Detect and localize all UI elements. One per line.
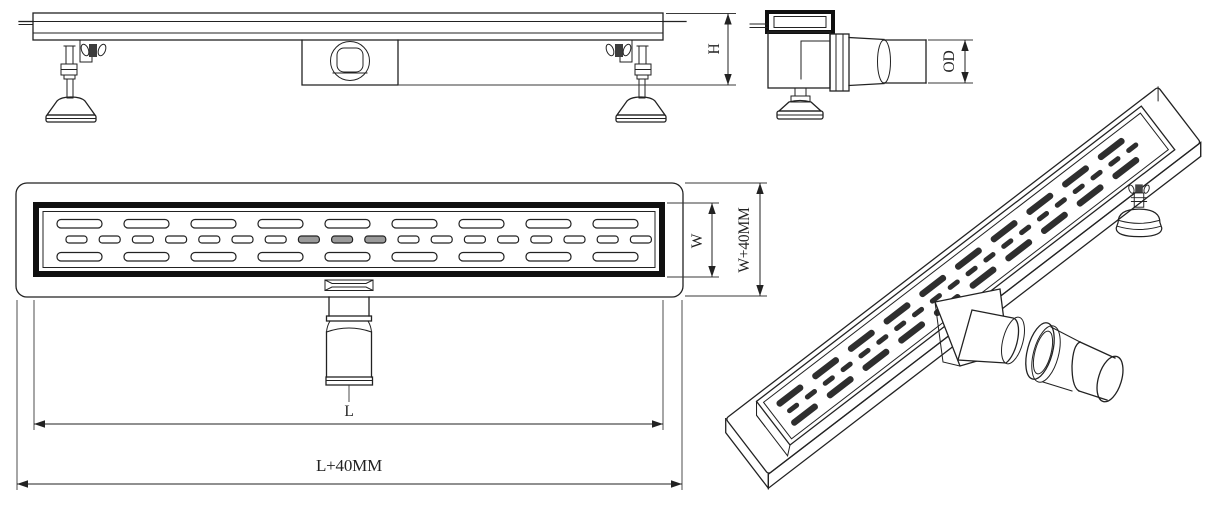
grate-slot (57, 220, 102, 229)
grate-slot (526, 220, 571, 229)
grate-slot (918, 274, 947, 299)
grate-slot (325, 220, 370, 229)
isometric-view (719, 87, 1220, 521)
grate-slot (325, 253, 370, 262)
end-grate-section (750, 12, 833, 32)
grate-slot (459, 253, 504, 262)
grate-slot (132, 236, 153, 243)
grate-slot (191, 253, 236, 262)
grate-slot (1107, 155, 1121, 167)
side-elevation-view: H (19, 13, 736, 122)
grate-slot (1025, 192, 1054, 217)
grate-slot (847, 328, 876, 353)
grate-slot (597, 236, 618, 243)
grate-slot (593, 220, 638, 229)
iso-channel (719, 87, 1207, 488)
grate-slot (431, 236, 452, 243)
grate-slot (1089, 169, 1103, 181)
side-foot-right (605, 40, 666, 122)
grate-slot (298, 236, 319, 243)
grate-slot (332, 236, 353, 243)
grate-slot (258, 220, 303, 229)
technical-drawing-canvas: H (0, 0, 1220, 521)
grate-slot (804, 388, 818, 400)
end-outlet-pipe (830, 34, 926, 91)
grate-slot (786, 402, 800, 414)
grate-slot (1018, 224, 1032, 236)
od-dimension: OD (928, 40, 973, 83)
drawing-page: H (0, 0, 1220, 521)
grate-slot (947, 278, 961, 290)
grate-slot (775, 383, 804, 408)
grate-slot (392, 253, 437, 262)
grate-slot (1054, 196, 1068, 208)
grate-slot (191, 220, 236, 229)
grate-slot (398, 236, 419, 243)
grate-slot (1036, 210, 1050, 222)
dim-label-w: W (689, 233, 706, 248)
grate-slot (464, 236, 485, 243)
grate-slot (811, 356, 840, 381)
grate-slot (265, 236, 286, 243)
grate-slot (199, 236, 220, 243)
grate-slot (911, 306, 925, 318)
grate-slot (989, 219, 1018, 244)
plan-trap-outlet (326, 297, 373, 402)
grate-slot (392, 220, 437, 229)
grate-slot (1125, 141, 1139, 153)
dim-label-l-plus-40: L+40MM (316, 456, 382, 475)
grate-slot (1061, 164, 1090, 189)
grate-slot (1072, 183, 1086, 195)
side-trap (302, 40, 398, 85)
grate-slot (1097, 137, 1126, 162)
grate-slot (526, 253, 571, 262)
w-dimension: W (667, 203, 719, 277)
grate-slot (822, 374, 836, 386)
grate-slot (99, 236, 120, 243)
grate-slot (498, 236, 519, 243)
grate-slot (882, 301, 911, 326)
grate-slot (365, 236, 386, 243)
l-dimension: L (34, 300, 663, 430)
end-channel-body (768, 32, 830, 88)
plan-view: W W+40MM L L+40MM (16, 183, 767, 490)
grate-slot (124, 220, 169, 229)
grate-slot (893, 320, 907, 332)
grate-slot (982, 251, 996, 263)
dim-label-h: H (706, 44, 723, 55)
grate-slot (57, 253, 102, 262)
h-dimension: H (398, 14, 736, 86)
plan-outlet-flange (325, 280, 373, 291)
grate-slot (258, 253, 303, 262)
dim-label-l: L (344, 403, 353, 420)
grate-slot (954, 246, 983, 271)
dim-label-w-plus-40: W+40MM (736, 207, 753, 273)
end-foot (777, 88, 823, 119)
grate-slot (1000, 237, 1014, 249)
grate-slot (840, 361, 854, 373)
grate-slot (232, 236, 253, 243)
iso-pipe-coupling (1020, 320, 1127, 405)
grate-slot (564, 236, 585, 243)
grate-slot (965, 265, 979, 277)
plan-grate-slots (57, 220, 651, 262)
grate-slot (875, 333, 889, 345)
grate-slot (66, 236, 87, 243)
grate-slot (630, 236, 651, 243)
grate-slot (459, 220, 504, 229)
grate-slot (857, 347, 871, 359)
dim-label-od: OD (941, 51, 958, 73)
side-channel-body (19, 13, 686, 40)
end-section-view: OD (750, 12, 973, 119)
side-foot-left (46, 40, 107, 122)
iso-grate-slots (775, 132, 1147, 427)
grate-slot (593, 253, 638, 262)
grate-slot (166, 236, 187, 243)
grate-slot (531, 236, 552, 243)
grate-slot (124, 253, 169, 262)
